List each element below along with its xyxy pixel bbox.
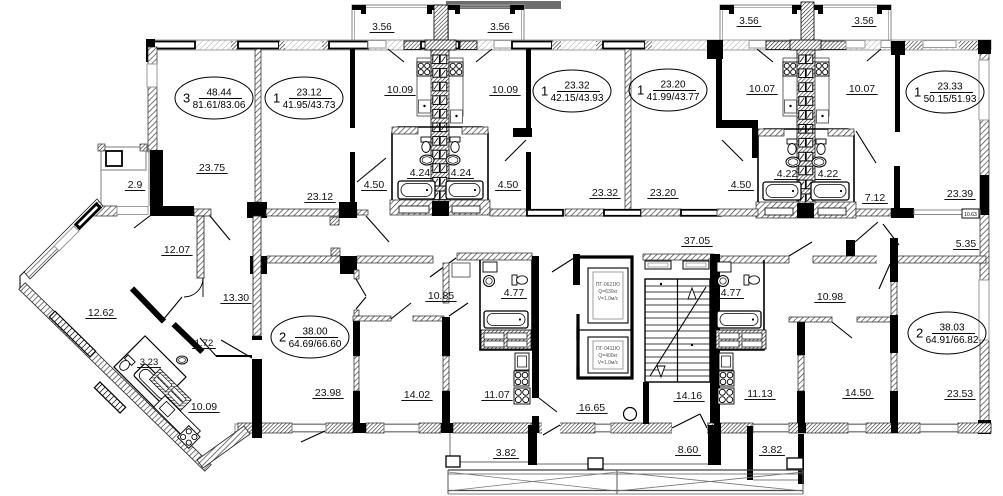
svg-text:23.12: 23.12 — [296, 88, 321, 99]
svg-text:37.05: 37.05 — [684, 235, 710, 247]
svg-text:38.00: 38.00 — [302, 327, 327, 338]
svg-text:50.15/51.93: 50.15/51.93 — [924, 94, 977, 105]
svg-text:12.07: 12.07 — [164, 244, 190, 256]
svg-text:5.35: 5.35 — [956, 238, 977, 250]
svg-text:10.85: 10.85 — [428, 290, 454, 302]
svg-text:13.30: 13.30 — [223, 292, 249, 304]
svg-text:1: 1 — [541, 84, 548, 99]
svg-text:7.12: 7.12 — [865, 192, 886, 204]
svg-text:12.62: 12.62 — [88, 307, 114, 319]
svg-text:16.65: 16.65 — [579, 402, 605, 414]
svg-text:ПГ-0621Ю: ПГ-0621Ю — [596, 282, 620, 288]
svg-text:8.60: 8.60 — [678, 444, 699, 456]
svg-text:48.44: 48.44 — [206, 88, 231, 99]
svg-text:ПГ-0411Ю: ПГ-0411Ю — [596, 346, 620, 352]
svg-text:V=1.0м/с: V=1.0м/с — [598, 296, 619, 302]
svg-text:4.24: 4.24 — [451, 167, 472, 179]
svg-text:3.56: 3.56 — [490, 22, 510, 33]
svg-text:2: 2 — [279, 330, 286, 345]
svg-text:10.98: 10.98 — [817, 291, 843, 303]
svg-text:3.56: 3.56 — [854, 16, 874, 27]
svg-text:4.50: 4.50 — [364, 179, 385, 191]
svg-text:38.03: 38.03 — [939, 323, 964, 334]
svg-text:23.20: 23.20 — [650, 187, 676, 199]
svg-text:3.23: 3.23 — [140, 357, 159, 368]
svg-text:23.32: 23.32 — [592, 187, 618, 199]
svg-text:14.50: 14.50 — [845, 387, 871, 399]
svg-text:4.24: 4.24 — [410, 167, 431, 179]
svg-text:Q=400кг: Q=400кг — [598, 353, 617, 359]
svg-text:10.09: 10.09 — [387, 84, 413, 96]
svg-text:4.22: 4.22 — [818, 168, 839, 180]
svg-text:3: 3 — [183, 91, 190, 106]
svg-text:81.61/83.06: 81.61/83.06 — [193, 100, 246, 111]
svg-text:3.56: 3.56 — [372, 22, 392, 33]
svg-text:10.09: 10.09 — [492, 84, 518, 96]
svg-text:V=1.0м/с: V=1.0м/с — [598, 360, 619, 366]
svg-text:3.82: 3.82 — [496, 447, 517, 459]
svg-text:1.72: 1.72 — [195, 338, 214, 349]
svg-text:11.07: 11.07 — [484, 389, 510, 401]
svg-text:4.22: 4.22 — [777, 168, 798, 180]
svg-text:14.16: 14.16 — [676, 390, 702, 402]
svg-text:10.09: 10.09 — [191, 401, 217, 413]
svg-text:64.69/66.60: 64.69/66.60 — [289, 339, 342, 350]
svg-text:2: 2 — [916, 326, 923, 341]
svg-text:3.56: 3.56 — [739, 16, 759, 27]
svg-text:10.07: 10.07 — [749, 83, 775, 95]
svg-text:23.39: 23.39 — [947, 188, 973, 200]
svg-text:2.9: 2.9 — [128, 179, 143, 191]
svg-text:Q=630кг: Q=630кг — [598, 289, 617, 295]
svg-text:1: 1 — [273, 91, 280, 106]
svg-text:1: 1 — [914, 85, 921, 100]
svg-text:41.95/43.73: 41.95/43.73 — [283, 100, 336, 111]
svg-text:4.77: 4.77 — [504, 287, 525, 299]
svg-text:64.91/66.82: 64.91/66.82 — [926, 335, 979, 346]
svg-text:23.12: 23.12 — [307, 191, 333, 203]
svg-text:3.82: 3.82 — [762, 444, 783, 456]
svg-text:11.13: 11.13 — [747, 388, 773, 400]
svg-text:41.99/43.77: 41.99/43.77 — [647, 92, 700, 103]
svg-text:10.07: 10.07 — [849, 83, 875, 95]
svg-text:14.02: 14.02 — [404, 389, 430, 401]
svg-text:1: 1 — [637, 83, 644, 98]
svg-text:4.50: 4.50 — [731, 179, 752, 191]
svg-text:42.15/43.93: 42.15/43.93 — [551, 93, 604, 104]
svg-text:10.63: 10.63 — [964, 212, 977, 218]
svg-text:23.53: 23.53 — [947, 388, 973, 400]
svg-text:23.98: 23.98 — [315, 387, 341, 399]
svg-text:23.20: 23.20 — [660, 80, 685, 91]
svg-text:23.75: 23.75 — [199, 162, 225, 174]
svg-text:23.32: 23.32 — [564, 81, 589, 92]
svg-text:4.77: 4.77 — [721, 287, 742, 299]
svg-text:4.50: 4.50 — [498, 179, 519, 191]
svg-text:23.33: 23.33 — [937, 82, 962, 93]
